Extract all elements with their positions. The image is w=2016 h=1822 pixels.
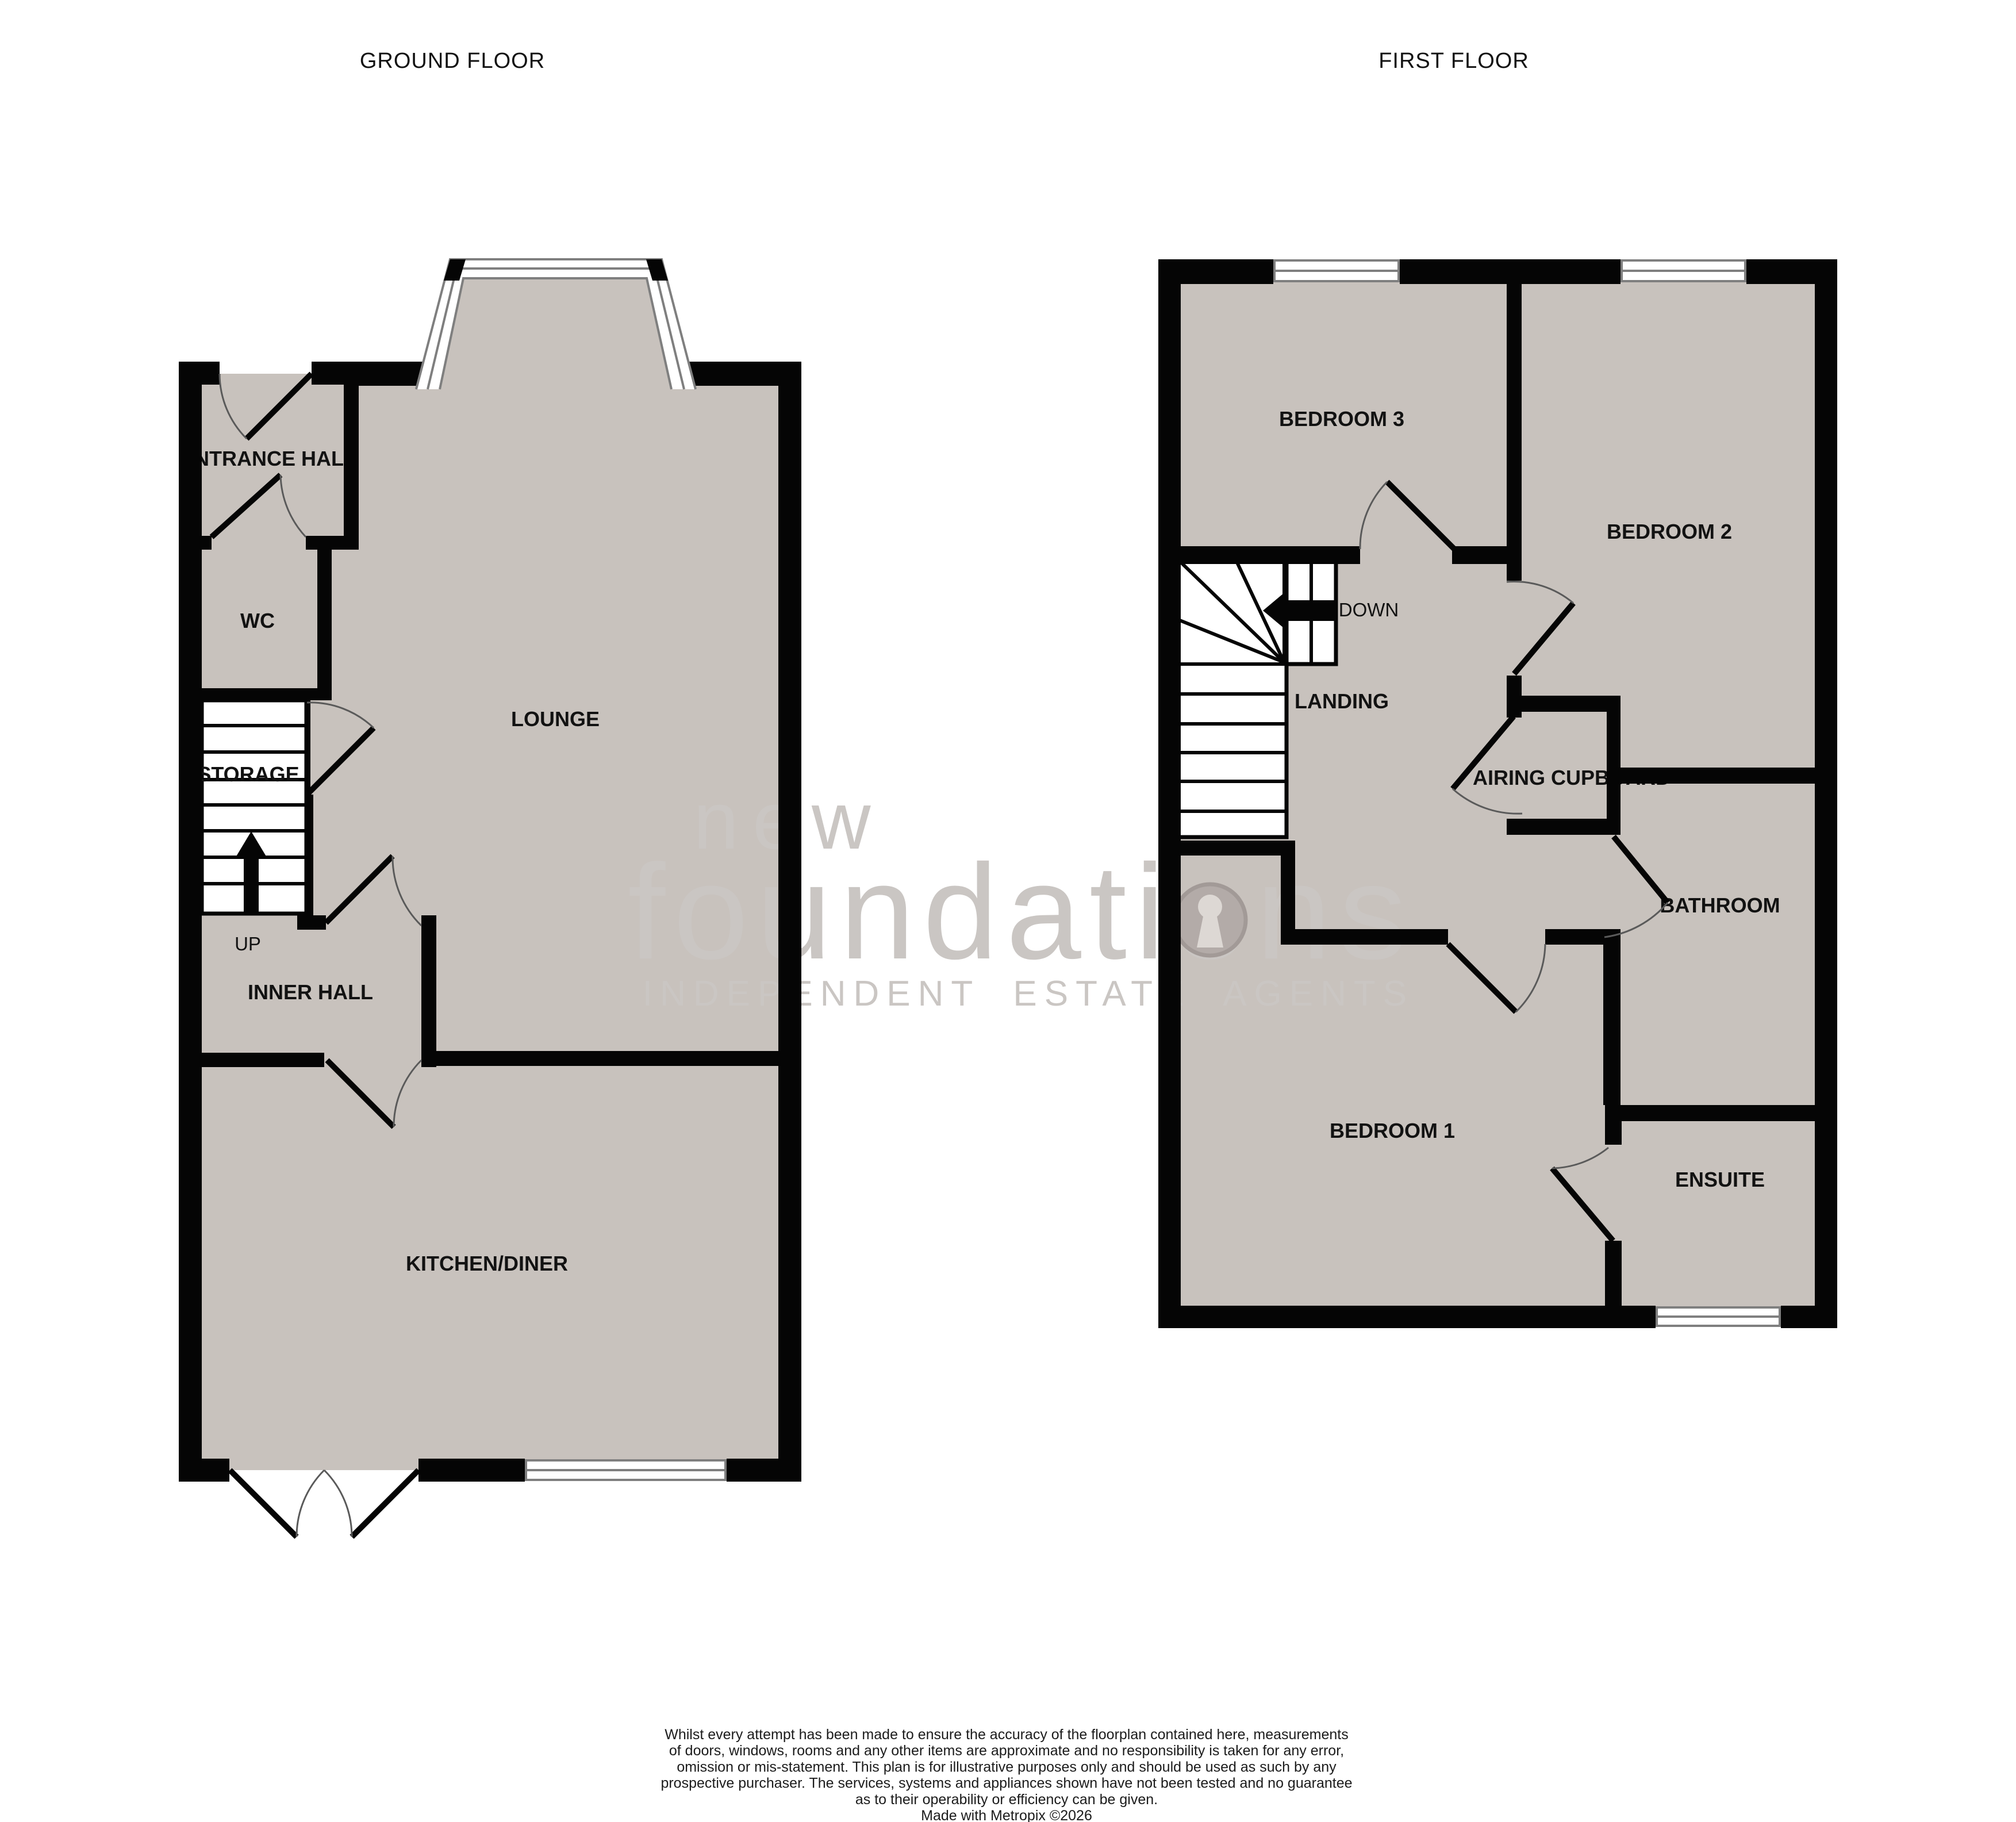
svg-text:LOUNGE: LOUNGE xyxy=(511,707,600,731)
svg-text:prospective purchaser. The ser: prospective purchaser. The services, sys… xyxy=(661,1775,1352,1792)
svg-text:GROUND FLOOR: GROUND FLOOR xyxy=(360,49,545,73)
svg-text:ENTRANCE HALL: ENTRANCE HALL xyxy=(181,447,356,470)
svg-text:foundations: foundations xyxy=(628,836,1415,987)
svg-text:BATHROOM: BATHROOM xyxy=(1660,893,1780,917)
svg-text:omission or mis-statement. Thi: omission or mis-statement. This plan is … xyxy=(677,1759,1337,1775)
svg-text:Made with Metropix ©2026: Made with Metropix ©2026 xyxy=(921,1808,1092,1822)
svg-text:BEDROOM 2: BEDROOM 2 xyxy=(1607,520,1732,543)
svg-text:Whilst every attempt has been: Whilst every attempt has been made to en… xyxy=(665,1727,1349,1743)
svg-text:BEDROOM 3: BEDROOM 3 xyxy=(1279,407,1404,431)
svg-text:of doors, windows, rooms and a: of doors, windows, rooms and any other i… xyxy=(669,1743,1344,1759)
svg-text:ENSUITE: ENSUITE xyxy=(1675,1168,1765,1191)
svg-text:BEDROOM 1: BEDROOM 1 xyxy=(1330,1119,1455,1142)
svg-text:STORAGE: STORAGE xyxy=(197,762,299,786)
svg-text:FIRST FLOOR: FIRST FLOOR xyxy=(1378,49,1529,73)
svg-text:as to their operability or eff: as to their operability or efficiency ca… xyxy=(855,1792,1158,1808)
svg-text:UP: UP xyxy=(235,933,261,954)
svg-text:DOWN: DOWN xyxy=(1339,599,1399,620)
svg-text:INDEPENDENT ESTATE AGENTS: INDEPENDENT ESTATE AGENTS xyxy=(643,974,1414,1014)
svg-text:LANDING: LANDING xyxy=(1295,689,1389,713)
svg-text:KITCHEN/DINER: KITCHEN/DINER xyxy=(406,1252,568,1275)
svg-text:WC: WC xyxy=(240,609,275,632)
svg-text:INNER HALL: INNER HALL xyxy=(248,980,373,1004)
